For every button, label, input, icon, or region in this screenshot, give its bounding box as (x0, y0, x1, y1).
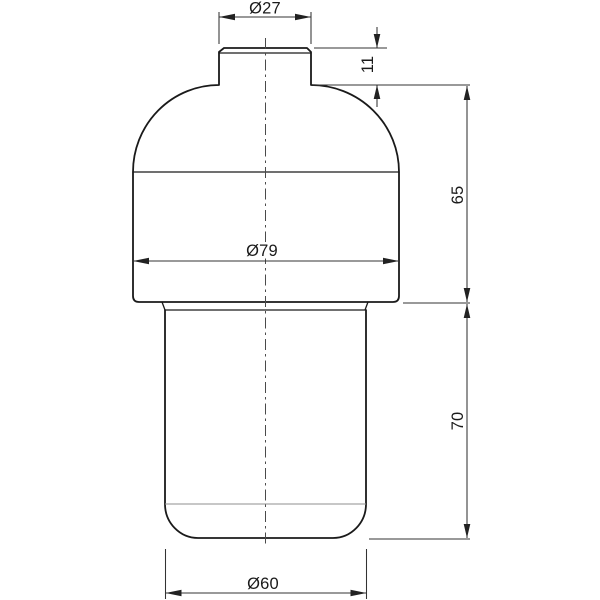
arrow-neck-height-top (374, 34, 381, 48)
label-neck-diameter: Ø27 (249, 0, 281, 18)
arrow-head-dia-left (133, 258, 149, 264)
label-neck-height: 11 (359, 56, 377, 74)
arrow-head-height-top (464, 86, 471, 100)
drawing-canvas: Ø27 11 65 Ø79 70 Ø60 (0, 0, 600, 600)
part-outline (133, 48, 399, 538)
extension-lines (166, 12, 471, 599)
label-bowl-height: 70 (449, 412, 467, 431)
arrow-bowl-dia-left (166, 590, 182, 596)
dimension-arrows (133, 14, 470, 596)
arrow-bowl-dia-right (351, 590, 367, 596)
arrow-head-dia-right (383, 258, 399, 264)
technical-drawing: Ø27 11 65 Ø79 70 Ø60 (0, 0, 600, 600)
arrow-neck-height-bottom (374, 85, 381, 99)
arrow-head-height-bottom (464, 288, 471, 302)
arrow-bowl-height-top (464, 304, 471, 318)
label-bowl-diameter: Ø60 (247, 575, 279, 593)
arrow-neck-dia-right (295, 14, 311, 20)
label-head-height: 65 (449, 186, 467, 205)
arrow-neck-dia-left (219, 14, 235, 20)
label-head-diameter: Ø79 (246, 242, 278, 260)
arrow-bowl-height-bottom (464, 524, 471, 538)
dimension-lines (133, 17, 467, 593)
